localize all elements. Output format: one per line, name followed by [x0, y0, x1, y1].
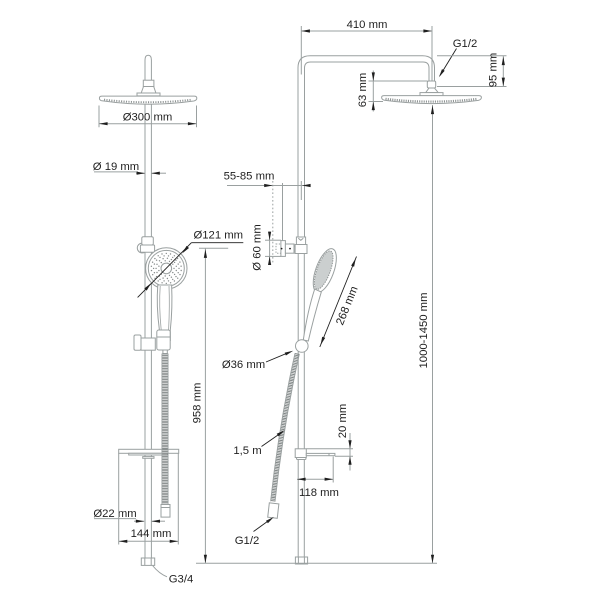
svg-text:410 mm: 410 mm: [347, 19, 388, 31]
svg-text:118 mm: 118 mm: [299, 487, 339, 499]
svg-text:Ø300 mm: Ø300 mm: [123, 112, 173, 124]
svg-text:1,5 m: 1,5 m: [233, 445, 261, 457]
svg-text:Ø36 mm: Ø36 mm: [222, 359, 265, 371]
svg-text:G1/2: G1/2: [453, 38, 478, 50]
svg-text:G1/2: G1/2: [235, 535, 260, 547]
svg-text:55-85 mm: 55-85 mm: [224, 170, 275, 182]
svg-text:Ø 60 mm: Ø 60 mm: [252, 224, 264, 270]
svg-text:95 mm: 95 mm: [488, 53, 500, 88]
svg-text:958 mm: 958 mm: [191, 383, 203, 424]
svg-text:Ø121 mm: Ø121 mm: [193, 229, 243, 241]
svg-text:1000-1450 mm: 1000-1450 mm: [418, 293, 430, 369]
svg-text:20 mm: 20 mm: [337, 404, 349, 439]
svg-text:G3/4: G3/4: [169, 573, 194, 585]
svg-text:144 mm: 144 mm: [131, 528, 172, 540]
svg-text:63 mm: 63 mm: [357, 73, 369, 108]
